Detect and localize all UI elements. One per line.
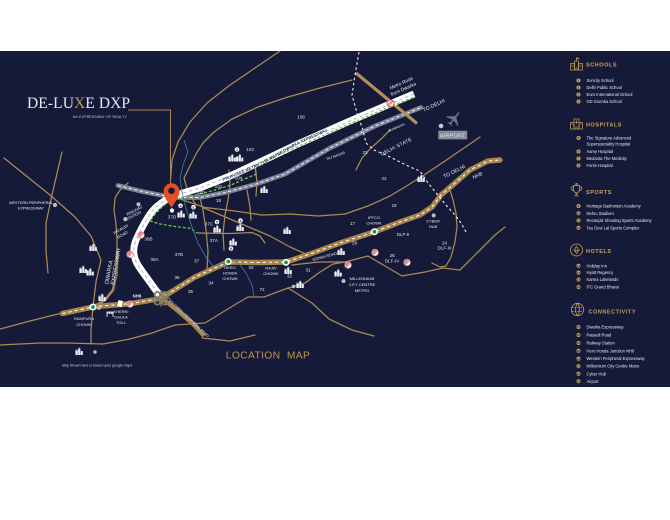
- svg-text:CONNECTIVITY: CONNECTIVITY: [589, 309, 637, 315]
- svg-text:33: 33: [248, 265, 254, 270]
- svg-text:37C: 37C: [205, 222, 214, 227]
- svg-text:CHOWK: CHOWK: [263, 271, 279, 276]
- svg-text:Western Peripheral Expressway: Western Peripheral Expressway: [587, 356, 646, 361]
- svg-text:Millennium City Centre Metro: Millennium City Centre Metro: [587, 364, 641, 369]
- svg-text:37: 37: [194, 259, 200, 264]
- svg-text:16: 16: [577, 285, 581, 289]
- svg-text:METRO: METRO: [355, 288, 369, 293]
- svg-text:5: 5: [578, 136, 580, 140]
- svg-text:Holiday Inn: Holiday Inn: [587, 263, 608, 268]
- svg-text:Railway Station: Railway Station: [587, 341, 616, 346]
- svg-text:RAJIV: RAJIV: [265, 266, 277, 271]
- svg-text:37B: 37B: [175, 252, 183, 257]
- svg-text:MILLENNIUM: MILLENNIUM: [350, 276, 375, 281]
- svg-text:22: 22: [577, 364, 581, 368]
- svg-text:8: 8: [578, 164, 580, 168]
- svg-text:Dwarka Expressway: Dwarka Expressway: [587, 325, 625, 330]
- svg-text:36B: 36B: [144, 237, 152, 242]
- svg-text:23: 23: [577, 372, 581, 376]
- svg-text:Nehru Stadium: Nehru Stadium: [587, 211, 615, 216]
- svg-text:10: 10: [577, 212, 581, 216]
- svg-text:Karma Lakelands: Karma Lakelands: [587, 277, 619, 282]
- svg-text:Map Shown here is based upon g: Map Shown here is based upon google maps: [62, 364, 132, 368]
- svg-text:IFFCO: IFFCO: [368, 215, 380, 220]
- svg-text:23: 23: [362, 150, 368, 155]
- svg-text:LOCATION MAP: LOCATION MAP: [226, 351, 310, 362]
- svg-text:CHOWK: CHOWK: [366, 221, 382, 226]
- svg-text:The Signature Advanced: The Signature Advanced: [587, 136, 633, 141]
- svg-text:13: 13: [577, 264, 581, 268]
- svg-text:7: 7: [578, 157, 580, 161]
- svg-text:9: 9: [578, 204, 580, 208]
- svg-text:4: 4: [180, 204, 182, 208]
- svg-text:31: 31: [305, 268, 311, 273]
- svg-text:RAMPURA: RAMPURA: [74, 316, 94, 321]
- svg-text:36A: 36A: [150, 257, 159, 262]
- svg-text:Tau Devi Lal Sports Complex: Tau Devi Lal Sports Complex: [587, 225, 640, 230]
- svg-text:11: 11: [577, 219, 581, 223]
- svg-text:HUB: HUB: [429, 224, 438, 229]
- svg-text:35: 35: [188, 289, 194, 294]
- svg-text:Hyatt Regency: Hyatt Regency: [587, 270, 615, 275]
- svg-text:Heritage Badminton Academy: Heritage Badminton Academy: [587, 204, 642, 209]
- svg-text:SPORTS: SPORTS: [586, 190, 612, 196]
- svg-text:DLF-III: DLF-III: [437, 246, 451, 251]
- svg-text:CITY CENTRE: CITY CENTRE: [349, 282, 376, 287]
- svg-text:DLF-II: DLF-II: [397, 232, 410, 237]
- svg-text:HOSPITALS: HOSPITALS: [586, 123, 622, 129]
- svg-text:18: 18: [577, 333, 581, 337]
- svg-text:1: 1: [578, 79, 580, 83]
- svg-text:6: 6: [578, 150, 580, 154]
- svg-text:2: 2: [578, 86, 580, 90]
- svg-text:EXPRESSWAY: EXPRESSWAY: [18, 207, 45, 211]
- svg-text:Delhi Public School: Delhi Public School: [587, 85, 622, 90]
- svg-text:29: 29: [352, 241, 358, 246]
- svg-text:37A: 37A: [210, 238, 219, 243]
- svg-text:6: 6: [193, 206, 195, 210]
- svg-text:WESTERN PERIPHERAL: WESTERN PERIPHERAL: [9, 201, 53, 205]
- svg-text:Euro International School: Euro International School: [587, 92, 633, 97]
- svg-text:17: 17: [350, 221, 356, 226]
- svg-text:SCHOOLS: SCHOOLS: [586, 63, 617, 69]
- svg-text:9: 9: [230, 247, 232, 251]
- svg-text:Fortis Hospital: Fortis Hospital: [587, 163, 613, 168]
- svg-text:17: 17: [577, 325, 581, 329]
- svg-text:CHOWK: CHOWK: [76, 322, 92, 327]
- svg-text:3: 3: [240, 219, 242, 223]
- svg-text:24: 24: [577, 380, 581, 384]
- svg-text:72: 72: [259, 287, 265, 292]
- svg-text:100: 100: [197, 190, 205, 195]
- svg-text:4: 4: [578, 100, 580, 104]
- svg-text:32: 32: [287, 274, 293, 279]
- svg-text:21: 21: [577, 357, 581, 361]
- svg-text:NH8: NH8: [133, 294, 142, 299]
- svg-text:3: 3: [578, 93, 580, 97]
- svg-text:101: 101: [215, 184, 223, 189]
- svg-text:19: 19: [577, 341, 581, 345]
- svg-text:14: 14: [577, 271, 581, 275]
- svg-text:HOTELS: HOTELS: [586, 249, 612, 255]
- svg-text:Aarvy Hospital: Aarvy Hospital: [587, 149, 613, 154]
- svg-text:CHOWK: CHOWK: [222, 276, 238, 281]
- svg-text:20: 20: [577, 349, 581, 353]
- svg-text:37D: 37D: [168, 215, 177, 220]
- svg-text:Cyber Hub: Cyber Hub: [587, 371, 607, 376]
- svg-text:ITC Grand Bharat: ITC Grand Bharat: [587, 285, 620, 290]
- svg-text:HONDA: HONDA: [223, 271, 238, 276]
- svg-text:TOLL: TOLL: [116, 320, 127, 325]
- svg-text:Airport: Airport: [587, 379, 600, 384]
- svg-text:18: 18: [216, 198, 222, 203]
- svg-text:KHERKI: KHERKI: [114, 309, 129, 314]
- svg-text:Hero Honda Junction NH8: Hero Honda Junction NH8: [587, 348, 636, 353]
- svg-text:5: 5: [216, 221, 218, 225]
- svg-text:22: 22: [381, 176, 387, 181]
- svg-text:18: 18: [391, 203, 397, 208]
- svg-text:DLF-IV: DLF-IV: [385, 259, 400, 264]
- svg-text:HERO: HERO: [224, 265, 236, 270]
- svg-text:108: 108: [297, 115, 305, 120]
- svg-text:15: 15: [577, 278, 581, 282]
- svg-text:CYBER: CYBER: [426, 219, 440, 224]
- svg-text:34: 34: [208, 281, 214, 286]
- svg-text:103: 103: [246, 147, 254, 152]
- svg-text:36: 36: [174, 275, 180, 280]
- svg-text:28: 28: [389, 253, 395, 258]
- svg-text:Recanjali Shooting Sports Acad: Recanjali Shooting Sports Academy: [587, 218, 653, 223]
- svg-text:AIRPORT: AIRPORT: [440, 134, 466, 140]
- svg-text:2: 2: [236, 148, 238, 152]
- svg-text:Suncity School: Suncity School: [587, 78, 614, 83]
- svg-text:12: 12: [577, 226, 581, 230]
- svg-text:Superspeciality Hospital: Superspeciality Hospital: [587, 142, 631, 147]
- svg-text:Pataudi Road: Pataudi Road: [587, 333, 613, 338]
- svg-text:Medanta The Medicity: Medanta The Medicity: [587, 156, 628, 161]
- svg-text:GD Goenka School: GD Goenka School: [587, 99, 622, 104]
- svg-text:DAULA: DAULA: [114, 315, 128, 320]
